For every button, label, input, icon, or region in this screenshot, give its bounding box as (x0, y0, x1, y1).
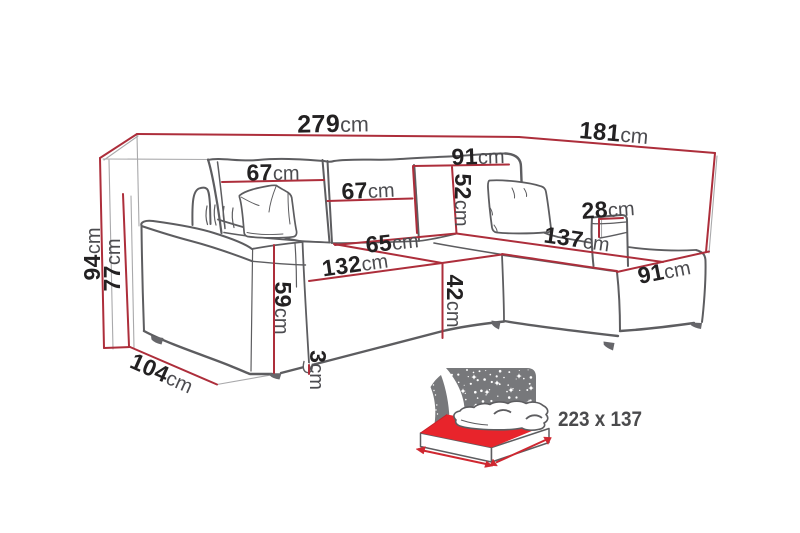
svg-text:77cm: 77cm (99, 238, 125, 291)
svg-text:67cm: 67cm (246, 159, 300, 186)
svg-text:279cm: 279cm (297, 109, 369, 138)
svg-text:59cm: 59cm (270, 281, 296, 334)
svg-text:223 x 137: 223 x 137 (558, 408, 642, 431)
svg-text:42cm: 42cm (442, 274, 468, 327)
svg-text:91cm: 91cm (451, 142, 505, 170)
svg-text:52cm: 52cm (450, 173, 476, 226)
svg-text:3cm: 3cm (305, 350, 331, 390)
